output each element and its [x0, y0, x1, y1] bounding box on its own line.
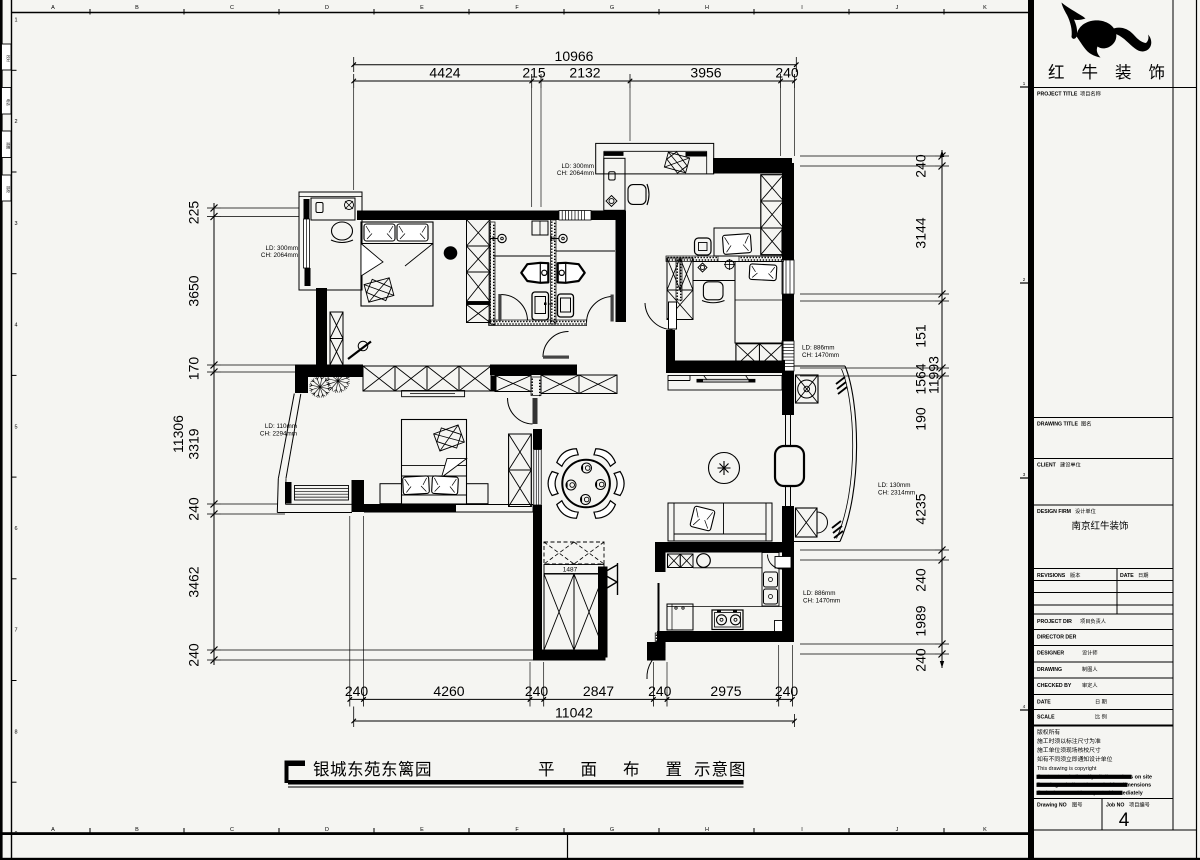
svg-text:LD: 300mm: LD: 300mm	[561, 163, 594, 170]
svg-text:DRAWING TITLE: DRAWING TITLE	[1037, 422, 1078, 428]
svg-text:4235: 4235	[913, 493, 929, 524]
svg-text:LD: 886mm: LD: 886mm	[803, 590, 836, 597]
svg-text:4: 4	[1119, 810, 1130, 831]
svg-text:LD: 130mm: LD: 130mm	[878, 482, 911, 489]
svg-text:2847: 2847	[583, 683, 614, 699]
svg-text:描图: 描图	[6, 142, 11, 149]
svg-text:1487: 1487	[563, 567, 578, 574]
svg-text:项目编号: 项目编号	[1129, 801, 1150, 809]
svg-text:H: H	[705, 827, 709, 833]
svg-text:CH: 2294mm: CH: 2294mm	[260, 431, 297, 438]
svg-text:This drawing is copyright: This drawing is copyright	[1037, 766, 1097, 772]
svg-text:E: E	[420, 5, 424, 11]
svg-text:CH: 1470mm: CH: 1470mm	[802, 352, 839, 359]
svg-text:215: 215	[522, 65, 546, 81]
svg-text:240: 240	[345, 683, 369, 699]
svg-text:LD: 886mm: LD: 886mm	[802, 345, 835, 352]
svg-text:C: C	[230, 5, 234, 11]
svg-text:11306: 11306	[170, 415, 186, 453]
svg-text:240: 240	[186, 643, 202, 667]
svg-text:A: A	[51, 5, 55, 11]
svg-text:6: 6	[15, 526, 18, 532]
svg-text:施工时须以标注尺寸为准: 施工时须以标注尺寸为准	[1037, 737, 1101, 745]
svg-text:4: 4	[15, 323, 18, 329]
svg-text:银城东苑东篱园: 银城东苑东篱园	[313, 760, 432, 779]
svg-text:SCALE: SCALE	[1037, 715, 1055, 721]
svg-text:电话: 电话	[6, 99, 11, 106]
svg-text:11042: 11042	[555, 705, 593, 721]
svg-text:240: 240	[913, 648, 929, 672]
svg-text:DIRECTOR DER: DIRECTOR DER	[1037, 635, 1077, 641]
svg-text:DRAWING: DRAWING	[1037, 667, 1062, 673]
svg-text:B: B	[135, 827, 139, 833]
svg-text:CH: 2064mm: CH: 2064mm	[557, 170, 594, 177]
svg-text:项目负责人: 项目负责人	[1080, 617, 1106, 625]
svg-text:CLIENT: CLIENT	[1037, 463, 1057, 469]
svg-text:4260: 4260	[433, 683, 464, 699]
svg-text:3462: 3462	[186, 566, 202, 597]
svg-text:8: 8	[15, 729, 18, 735]
svg-text:平面布置: 平面布置	[538, 760, 708, 779]
svg-text:K: K	[983, 827, 987, 833]
svg-text:图名: 图名	[1081, 420, 1091, 428]
svg-text:151: 151	[913, 324, 929, 348]
svg-text:日 期: 日 期	[1095, 699, 1107, 706]
svg-text:版本: 版本	[1070, 571, 1080, 579]
svg-text:红牛装饰: 红牛装饰	[1048, 63, 1182, 82]
svg-text:A: A	[51, 827, 55, 833]
svg-text:DATE: DATE	[1037, 700, 1051, 706]
svg-text:5: 5	[15, 424, 18, 430]
svg-text:设计师: 设计师	[1082, 649, 1098, 657]
svg-text:日期: 日期	[1138, 572, 1148, 579]
svg-text:CHECKED BY: CHECKED BY	[1037, 683, 1072, 689]
svg-text:240: 240	[775, 683, 799, 699]
svg-text:G: G	[610, 5, 614, 11]
svg-text:3319: 3319	[186, 428, 202, 459]
svg-text:G: G	[610, 827, 614, 833]
svg-text:施工单位须现场核校尺寸: 施工单位须现场核校尺寸	[1037, 746, 1101, 754]
svg-text:南京红牛装饰: 南京红牛装饰	[1071, 520, 1128, 532]
svg-text:Drawing NO: Drawing NO	[1037, 803, 1067, 809]
svg-text:CH: 2064mm: CH: 2064mm	[261, 252, 298, 259]
svg-text:3650: 3650	[186, 275, 202, 306]
svg-text:2: 2	[15, 119, 18, 125]
svg-text:比 例: 比 例	[1095, 713, 1107, 721]
svg-text:Job NO: Job NO	[1106, 803, 1124, 809]
svg-text:PROJECT DIR: PROJECT DIR	[1037, 619, 1072, 625]
svg-text:项目名称: 项目名称	[1080, 90, 1101, 98]
svg-text:LD: 300mm: LD: 300mm	[265, 245, 298, 252]
svg-text:DESIGNER: DESIGNER	[1037, 651, 1064, 657]
svg-text:B: B	[135, 5, 139, 11]
svg-text:设计单位: 设计单位	[1075, 507, 1096, 515]
svg-text:DATE: DATE	[1120, 573, 1134, 579]
svg-text:10966: 10966	[555, 48, 594, 64]
svg-text:版权所有: 版权所有	[1037, 728, 1060, 736]
svg-text:描校: 描校	[6, 186, 11, 193]
svg-text:图号: 图号	[1072, 802, 1082, 809]
svg-text:7: 7	[15, 628, 18, 634]
svg-text:J: J	[896, 5, 899, 11]
svg-text:CH: 2314mm: CH: 2314mm	[878, 490, 915, 497]
svg-text:240: 240	[648, 683, 672, 699]
svg-text:1989: 1989	[913, 605, 929, 636]
svg-text:REVISIONS: REVISIONS	[1037, 573, 1066, 579]
svg-text:E: E	[420, 827, 424, 833]
svg-text:建设单位: 建设单位	[1060, 461, 1081, 469]
svg-text:D: D	[325, 827, 329, 833]
svg-text:J: J	[896, 827, 899, 833]
svg-text:LD: 110mm: LD: 110mm	[265, 423, 297, 430]
svg-text:DESIGN FIRM: DESIGN FIRM	[1037, 509, 1071, 515]
svg-text:240: 240	[775, 65, 799, 81]
svg-text:240: 240	[913, 568, 929, 592]
svg-text:11993: 11993	[926, 356, 942, 394]
svg-text:CH: 1470mm: CH: 1470mm	[803, 598, 840, 605]
svg-text:2975: 2975	[710, 683, 741, 699]
svg-text:D: D	[325, 5, 329, 11]
svg-text:3: 3	[15, 221, 18, 227]
svg-text:170: 170	[186, 357, 202, 381]
svg-text:示意图: 示意图	[694, 760, 747, 779]
svg-text:4424: 4424	[429, 65, 460, 81]
svg-text:2132: 2132	[569, 65, 600, 81]
svg-text:H: H	[705, 5, 709, 11]
svg-text:190: 190	[913, 407, 929, 431]
svg-text:K: K	[983, 5, 987, 11]
svg-text:3144: 3144	[913, 217, 929, 248]
svg-text:240: 240	[186, 497, 202, 521]
svg-text:C: C	[230, 827, 234, 833]
svg-text:PROJECT TITLE: PROJECT TITLE	[1037, 92, 1078, 98]
svg-text:审定人: 审定人	[1082, 681, 1098, 689]
svg-text:1: 1	[15, 18, 18, 24]
svg-text:225: 225	[186, 201, 202, 225]
svg-text:校对: 校对	[6, 55, 11, 62]
svg-text:制图人: 制图人	[1082, 665, 1098, 673]
svg-text:3956: 3956	[690, 65, 721, 81]
svg-text:240: 240	[525, 683, 549, 699]
svg-text:如有不同须立即通知设计单位: 如有不同须立即通知设计单位	[1037, 755, 1113, 763]
